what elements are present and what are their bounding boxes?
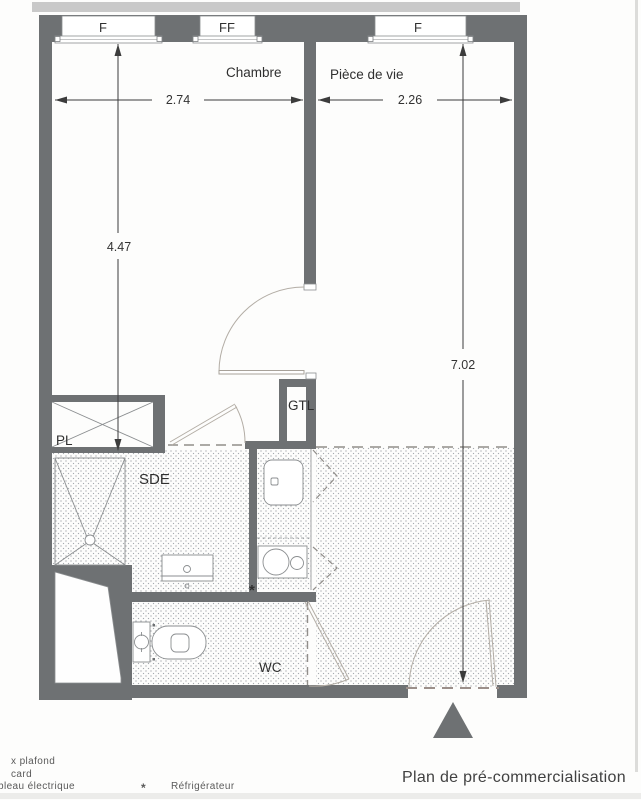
entry-floor [316, 447, 514, 687]
dimension-labels: 2.74 2.26 4.47 7.02 [107, 93, 475, 372]
kitchen-wall-left [249, 441, 257, 598]
entrance-triangle-icon [433, 702, 473, 738]
label-pl: PL [56, 433, 73, 448]
plan-caption: Plan de pré-commercialisation [402, 769, 632, 787]
wall-divider-upper [304, 42, 316, 285]
window-label-f2: F [414, 20, 422, 35]
wc-wall-top [122, 592, 316, 602]
dim-total-depth: 7.02 [451, 358, 475, 372]
legend-fridge-symbol: * [141, 781, 146, 795]
wall-left [39, 15, 52, 565]
sde-door [170, 404, 245, 445]
chambre-door [219, 287, 304, 374]
pl-wall-top [52, 395, 165, 402]
legend-line-2: card [11, 769, 32, 780]
label-piece-de-vie: Pièce de vie [330, 67, 404, 82]
label-chambre: Chambre [226, 65, 282, 80]
dim-chambre-depth: 4.47 [107, 240, 131, 254]
gtl-wall-left [279, 379, 287, 449]
balcony-slab-edge [32, 2, 520, 12]
window-label-ff: FF [219, 20, 235, 35]
window-f1: F [55, 16, 162, 43]
legend-line-3: bleau électrique [0, 781, 75, 792]
floor-plan-drawing: F FF F [0, 0, 641, 800]
label-gtl: GTL [288, 398, 315, 413]
legend-line-1: x plafond [11, 756, 55, 767]
window-ff: FF [193, 16, 262, 43]
fridge-marker: * [249, 582, 255, 599]
cooktop [258, 546, 307, 578]
pl-wall-right [153, 395, 165, 453]
door-jambs [304, 284, 316, 379]
legend-fridge-label: Réfrigérateur [171, 781, 235, 792]
wall-bottom-right [497, 685, 527, 698]
label-sde: SDE [139, 471, 170, 488]
label-wc: WC [259, 660, 282, 675]
dim-chambre-width: 2.74 [166, 93, 190, 107]
wall-right [514, 15, 527, 698]
window-f2: F [368, 16, 473, 43]
toilet [133, 622, 206, 662]
floor-plan-page: F FF F [0, 0, 641, 800]
window-label-f1: F [99, 20, 107, 35]
dim-piece-width: 2.26 [398, 93, 422, 107]
